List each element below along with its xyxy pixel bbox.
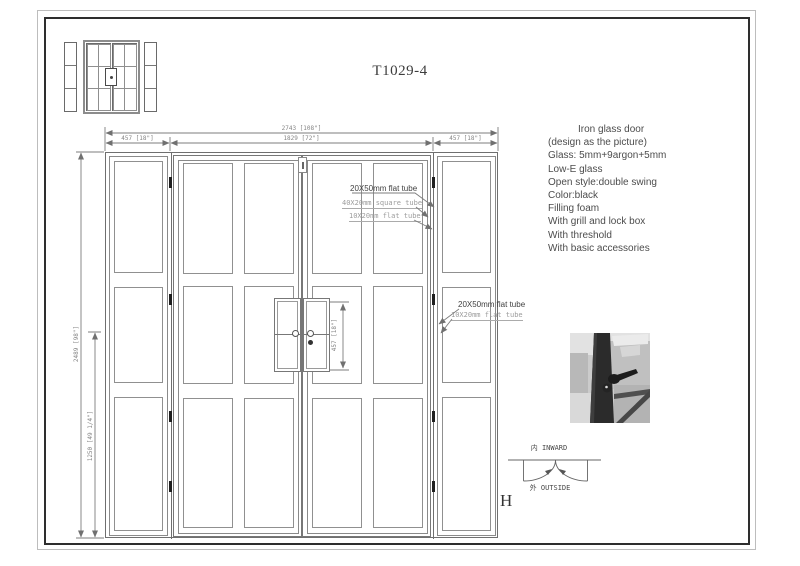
hinge-icon	[432, 481, 435, 492]
swing-inward-label: 内 INWARD	[502, 443, 596, 453]
glass-pane	[373, 398, 423, 528]
spec-line: With threshold	[548, 229, 728, 242]
swing-outside-label: 外 OUTSIDE	[503, 483, 597, 493]
callout-flat-tube-top: 10X20mm flat tube	[349, 212, 421, 222]
spec-line: Color:black	[548, 189, 728, 202]
glass-pane	[244, 163, 294, 274]
spec-line: Filling foam	[548, 202, 728, 215]
spec-line: With basic accessories	[548, 242, 728, 255]
hinge-icon	[169, 294, 172, 305]
dim-left-sidelight: 457 [18"]	[105, 136, 170, 142]
thumbnail-lock-box	[105, 68, 117, 86]
dim-right-sidelight: 457 [18"]	[433, 136, 498, 142]
flush-bolt	[298, 157, 307, 173]
spec-line: Glass: 5mm+9argon+5mm	[548, 149, 728, 162]
glass-pane	[373, 286, 423, 384]
spec-line: (design as the picture)	[548, 136, 728, 149]
door-handle-photo	[570, 333, 650, 423]
door-elevation-drawing	[105, 152, 498, 538]
glass-pane	[442, 161, 491, 273]
hinge-icon	[432, 411, 435, 422]
glass-pane	[312, 398, 362, 528]
spec-line: Open style:double swing	[548, 176, 728, 189]
dim-door-width: 1829 [72"]	[170, 136, 433, 142]
hinge-icon	[432, 294, 435, 305]
dim-overall-height: 2489 [98"]	[74, 309, 80, 379]
glass-pane	[183, 286, 233, 384]
drawing-sheet: T1029-4	[0, 0, 800, 566]
hinge-icon	[432, 177, 435, 188]
hinge-icon	[169, 411, 172, 422]
hinge-icon	[169, 481, 172, 492]
callout-frame-tube-side: 20X50mm flat tube	[458, 300, 525, 309]
glass-pane	[114, 287, 163, 383]
handle-knob-icon	[292, 330, 299, 337]
glass-pane	[183, 163, 233, 274]
callout-frame-tube-top: 20X50mm flat tube	[350, 184, 417, 193]
spec-line: Iron glass door	[548, 123, 728, 136]
dim-overall-width: 2743 [108"]	[105, 126, 498, 132]
sheet-letter: H	[500, 491, 512, 511]
dim-handle-height: 1250 [49 1/4"]	[88, 401, 94, 471]
glass-pane	[244, 398, 294, 528]
dim-lock-section-height: 457 [18"]	[332, 300, 338, 370]
glass-pane	[114, 397, 163, 531]
spec-line: Low-E glass	[548, 163, 728, 176]
door-elevation-thumbnail	[63, 40, 158, 114]
thumbnail-left-sidelight	[64, 42, 77, 112]
callout-square-tube-top: 40X20mm square tube	[342, 199, 422, 209]
spec-list: Iron glass door (design as the picture) …	[548, 123, 728, 255]
handle-knob-icon	[307, 330, 314, 337]
cylinder-dot-icon	[308, 340, 313, 345]
glass-pane	[114, 161, 163, 273]
glass-pane	[442, 397, 491, 531]
spec-line: With grill and lock box	[548, 215, 728, 228]
glass-pane	[183, 398, 233, 528]
hinge-icon	[169, 177, 172, 188]
thumbnail-right-sidelight	[144, 42, 157, 112]
drawing-title: T1029-4	[300, 63, 500, 80]
callout-flat-tube-side: 10X20mm flat tube	[451, 311, 523, 321]
